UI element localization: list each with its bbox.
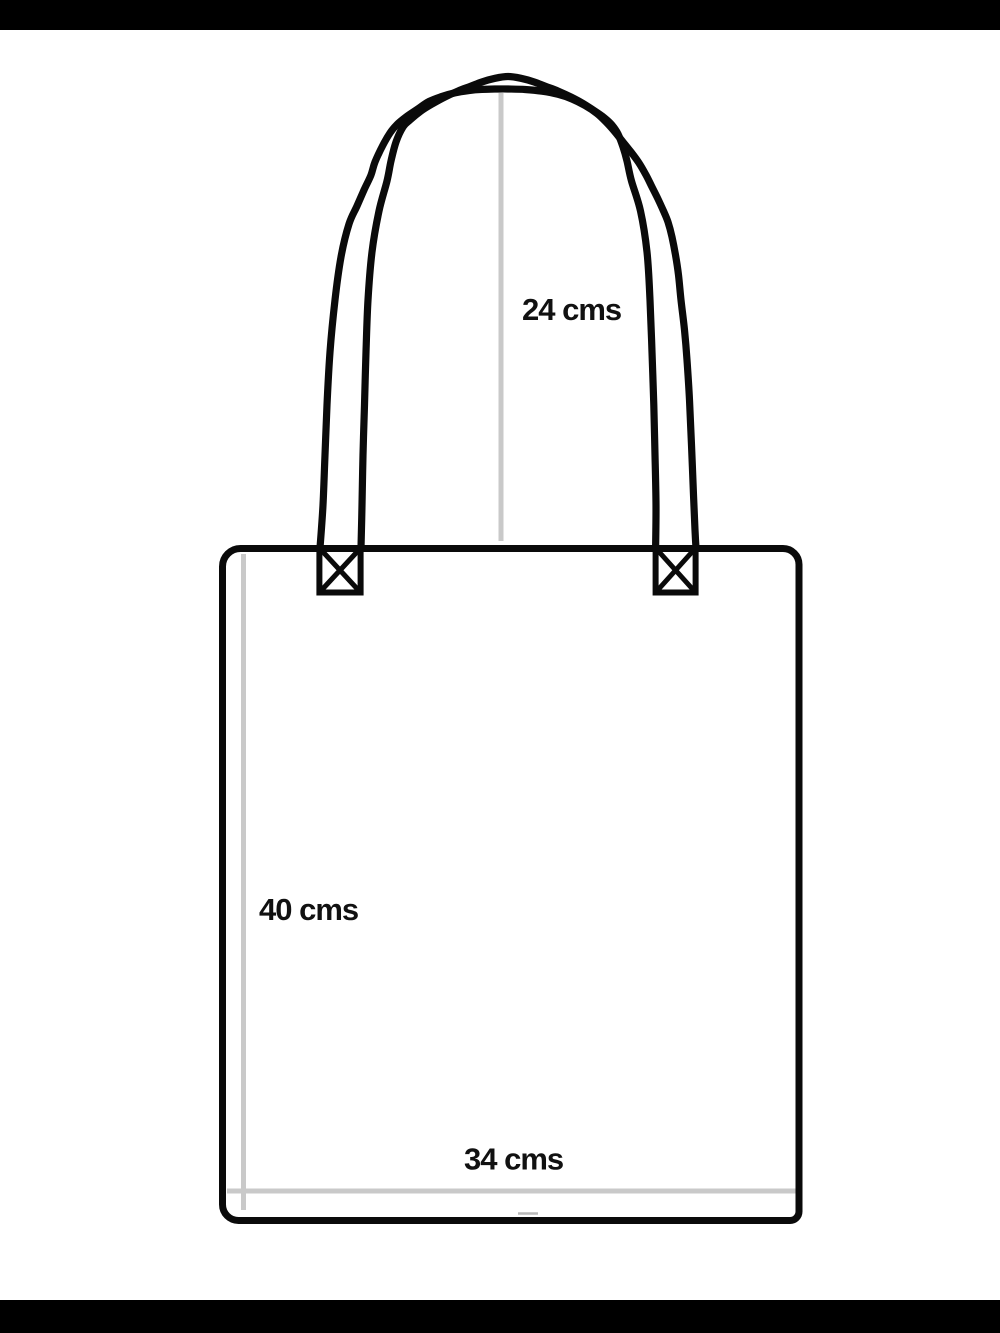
svg-text:34 cms: 34 cms [464, 1142, 563, 1177]
svg-text:40 cms: 40 cms [259, 892, 358, 927]
svg-text:24 cms: 24 cms [522, 292, 621, 327]
